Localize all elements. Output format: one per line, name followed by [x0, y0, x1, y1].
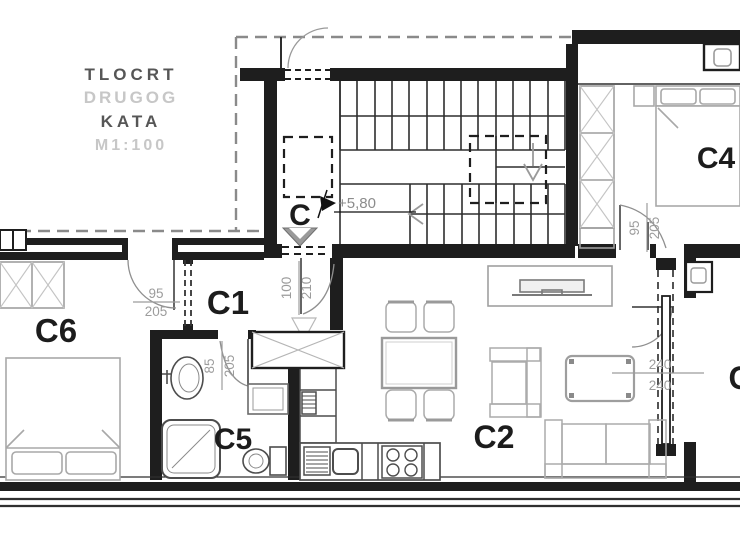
level-value: +5,80 [338, 195, 376, 212]
dining-set [382, 302, 456, 420]
dining-table [382, 338, 456, 388]
tv-sideboard [488, 266, 612, 306]
nightstand [634, 86, 654, 106]
dim-bath-width: 85 [202, 358, 217, 373]
entry-lintel-dashed [285, 70, 330, 79]
floor-plan: +5,80 [0, 0, 740, 550]
room-label-c1: C1 [207, 284, 249, 321]
room-label-c6: C6 [35, 312, 77, 349]
sink [171, 357, 203, 399]
pillow [12, 452, 62, 474]
room-label-neighbor: C [728, 360, 740, 396]
armchair [490, 348, 541, 417]
staircase [340, 81, 565, 244]
dim-c4-height: 205 [647, 217, 662, 240]
partition-dashed [185, 260, 191, 330]
sofa [545, 420, 666, 478]
dim-c6-height: 205 [145, 304, 168, 319]
dim-slide-height: 240 [649, 378, 672, 393]
pillow [700, 89, 735, 104]
room-label-c5: C5 [214, 423, 252, 456]
hall-closet [252, 332, 344, 368]
toilet-cistern [270, 447, 286, 475]
dim-entry-height: 210 [299, 277, 314, 300]
ladder-hatch [302, 392, 316, 414]
furniture-c6 [0, 262, 120, 480]
furniture-c2 [488, 266, 666, 478]
wardrobe-c6 [0, 262, 64, 308]
sink-basin [333, 449, 358, 474]
c2-shaft-box [686, 262, 712, 292]
stair-direction-arrows [292, 143, 542, 340]
room-label-c4: C4 [697, 142, 736, 175]
title-line-2: DRUGOG [84, 88, 179, 107]
coffee-table [566, 356, 634, 401]
pillow [661, 89, 696, 104]
title-line-1: TLOCRT [85, 65, 178, 84]
dim-c4-width: 95 [627, 220, 642, 235]
left-window-boxes [0, 230, 26, 250]
wardrobe-c4 [580, 86, 614, 248]
room-label-stair: C [289, 199, 311, 232]
title-line-3: KATA [101, 112, 162, 131]
dim-bath-height: 205 [222, 355, 237, 378]
floor-plan-svg: +5,80 [0, 0, 740, 550]
dim-c6-width: 95 [148, 286, 163, 301]
pillow [66, 452, 116, 474]
stair-opening-dashed [284, 136, 546, 203]
dim-slide-width: 240 [649, 357, 672, 372]
sink-drainer [304, 447, 330, 475]
utility-shaft-box [704, 44, 740, 70]
title-block: TLOCRT DRUGOG KATA M1:100 [84, 65, 179, 154]
title-line-4: M1:100 [95, 137, 167, 154]
bed-c6 [6, 358, 120, 480]
terrace-door-arc [288, 28, 328, 68]
room-label-c2: C2 [474, 419, 515, 455]
dim-entry-width: 100 [279, 277, 294, 300]
